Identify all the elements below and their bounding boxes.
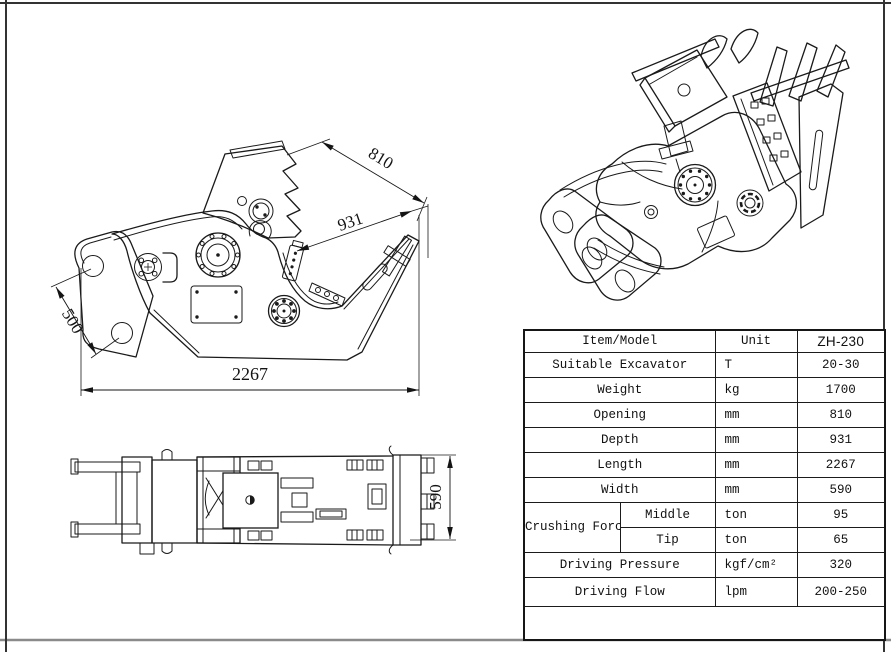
dimension-width: 590 xyxy=(410,455,456,540)
cell-unit: ton xyxy=(715,502,797,527)
cell-unit: mm xyxy=(715,452,797,477)
plan-view: 590 xyxy=(71,446,456,554)
side-bolt-plate xyxy=(191,286,242,323)
cell-unit: kgf/cm² xyxy=(715,552,797,577)
cell-item: Suitable Excavator xyxy=(524,352,715,377)
cell-item: Opening xyxy=(524,402,715,427)
cell-unit: ton xyxy=(715,527,797,552)
cell-value: 931 xyxy=(797,427,885,452)
cell-sub-item: Middle xyxy=(620,502,715,527)
cell-sub-item: Tip xyxy=(620,527,715,552)
cell-value: 200-250 xyxy=(797,577,885,606)
iso-jaw xyxy=(733,83,843,228)
cell-item: Driving Flow xyxy=(524,577,715,606)
cell-item: Depth xyxy=(524,427,715,452)
dim-label-590: 590 xyxy=(426,484,445,510)
side-bearing xyxy=(269,296,300,327)
dim-label-2267: 2267 xyxy=(232,364,268,384)
cell-value: 20-30 xyxy=(797,352,885,377)
iso-body xyxy=(596,112,796,268)
cell-value: 2267 xyxy=(797,452,885,477)
dimension-depth: 931 xyxy=(297,204,428,258)
table-row: Opening mm 810 xyxy=(524,402,885,427)
side-jaw-teeth xyxy=(203,141,301,239)
table-header-row: Item/Model Unit ZH-230 xyxy=(524,330,885,352)
dimension-length: 2267 xyxy=(81,215,419,396)
cell-item-crushing-force: Crushing Force xyxy=(524,502,620,552)
cell-item: Length xyxy=(524,452,715,477)
cell-value: 320 xyxy=(797,552,885,577)
spec-table: Item/Model Unit ZH-230 Suitable Excavato… xyxy=(523,329,886,641)
table-row: Suitable Excavator T 20-30 xyxy=(524,352,885,377)
header-item-model: Item/Model xyxy=(524,330,715,352)
table-empty-row xyxy=(524,606,885,640)
table-row: Driving Flow lpm 200-250 xyxy=(524,577,885,606)
iso-teeth xyxy=(701,29,849,106)
plan-left-rails xyxy=(71,459,140,537)
cell-value: 65 xyxy=(797,527,885,552)
side-view: 810 931 500 2267 xyxy=(51,139,428,396)
cell-unit: T xyxy=(715,352,797,377)
table-row: Depth mm 931 xyxy=(524,427,885,452)
header-unit: Unit xyxy=(715,330,797,352)
header-model: ZH-230 xyxy=(797,330,885,352)
dim-label-810: 810 xyxy=(365,144,397,173)
table-row: Length mm 2267 xyxy=(524,452,885,477)
cell-value: 590 xyxy=(797,477,885,502)
side-arm-details xyxy=(309,236,412,306)
plan-mid-body xyxy=(152,450,197,554)
cell-unit: mm xyxy=(715,402,797,427)
cell-unit: lpm xyxy=(715,577,797,606)
table-row: Crushing Force Middle ton 95 xyxy=(524,502,885,527)
cell-unit: mm xyxy=(715,427,797,452)
isometric-view xyxy=(541,29,849,300)
cell-item: Driving Pressure xyxy=(524,552,715,577)
cell-value: 810 xyxy=(797,402,885,427)
cell-empty xyxy=(524,606,885,640)
table-row: Driving Pressure kgf/cm² 320 xyxy=(524,552,885,577)
plan-center-block xyxy=(223,473,278,528)
side-main-flange xyxy=(196,233,240,277)
cell-unit: kg xyxy=(715,377,797,402)
cell-value: 1700 xyxy=(797,377,885,402)
cell-unit: mm xyxy=(715,477,797,502)
iso-top-bracket xyxy=(632,39,727,172)
table-row: Width mm 590 xyxy=(524,477,885,502)
dimension-bracket: 500 xyxy=(51,269,119,358)
cell-item: Weight xyxy=(524,377,715,402)
dim-label-931: 931 xyxy=(335,209,365,235)
cell-value: 95 xyxy=(797,502,885,527)
table-row: Weight kg 1700 xyxy=(524,377,885,402)
cell-item: Width xyxy=(524,477,715,502)
drawing-sheet: 810 931 500 2267 xyxy=(0,0,891,652)
